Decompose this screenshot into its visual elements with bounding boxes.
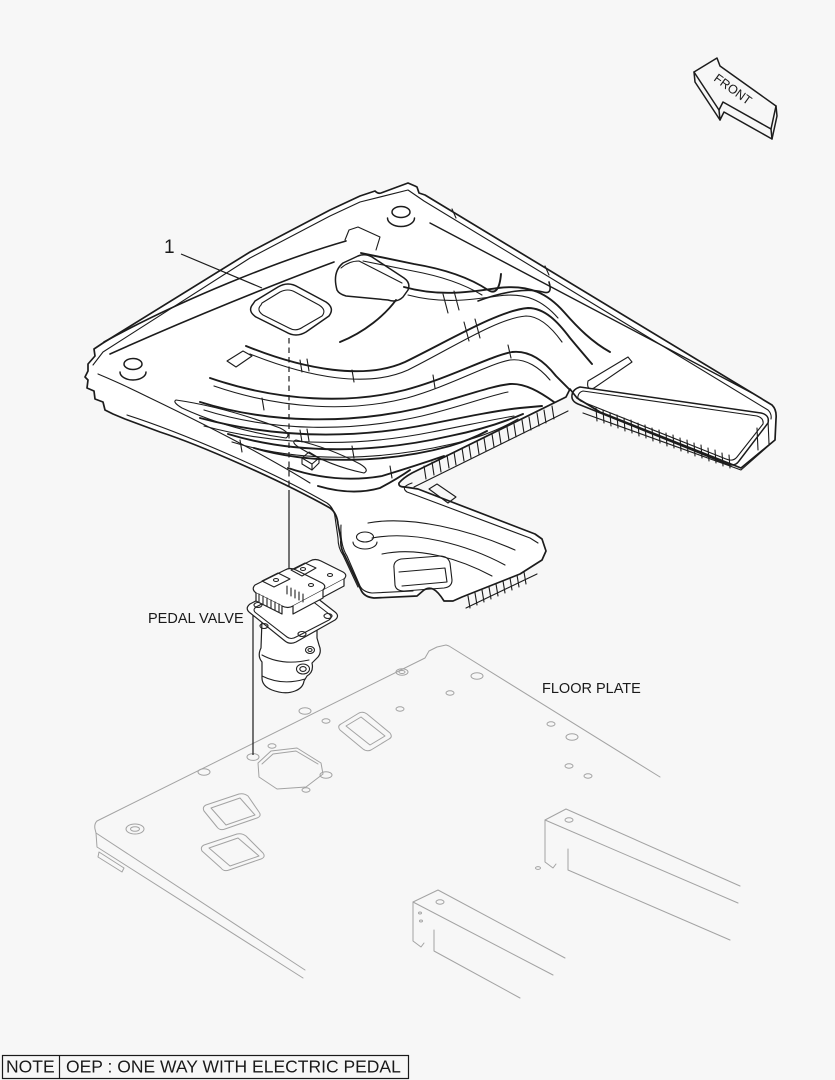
svg-text:OEP : ONE WAY WITH ELECTRIC PE: OEP : ONE WAY WITH ELECTRIC PEDAL [66,1057,401,1077]
svg-text:NOTE: NOTE [6,1057,55,1077]
svg-text:PEDAL VALVE: PEDAL VALVE [148,611,244,627]
svg-text:1: 1 [164,237,175,258]
svg-text:FLOOR PLATE: FLOOR PLATE [542,681,641,697]
